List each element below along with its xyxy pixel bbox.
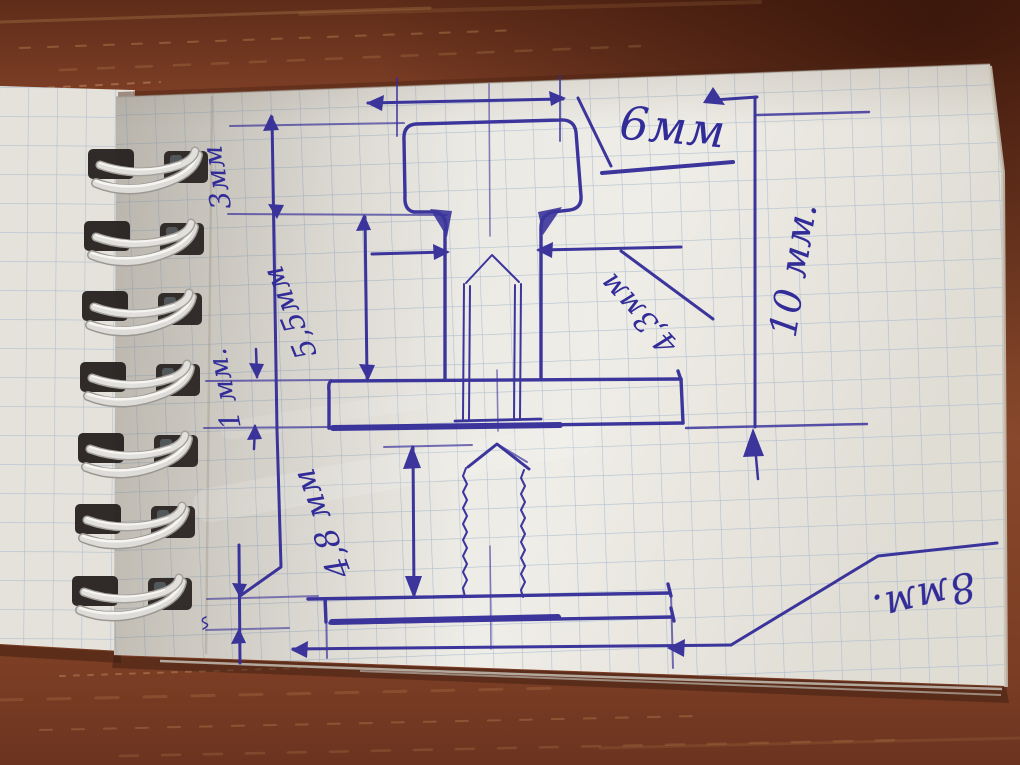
label-head-width: 6мм [617, 96, 727, 159]
sketch-photo: 6мм 10 мм. 3мм 5,5мм 1 мм. 4,3мм 4,8 мм … [0, 0, 1020, 765]
photo-scene: 6мм 10 мм. 3мм 5,5мм 1 мм. 4,3мм 4,8 мм … [0, 0, 1020, 765]
